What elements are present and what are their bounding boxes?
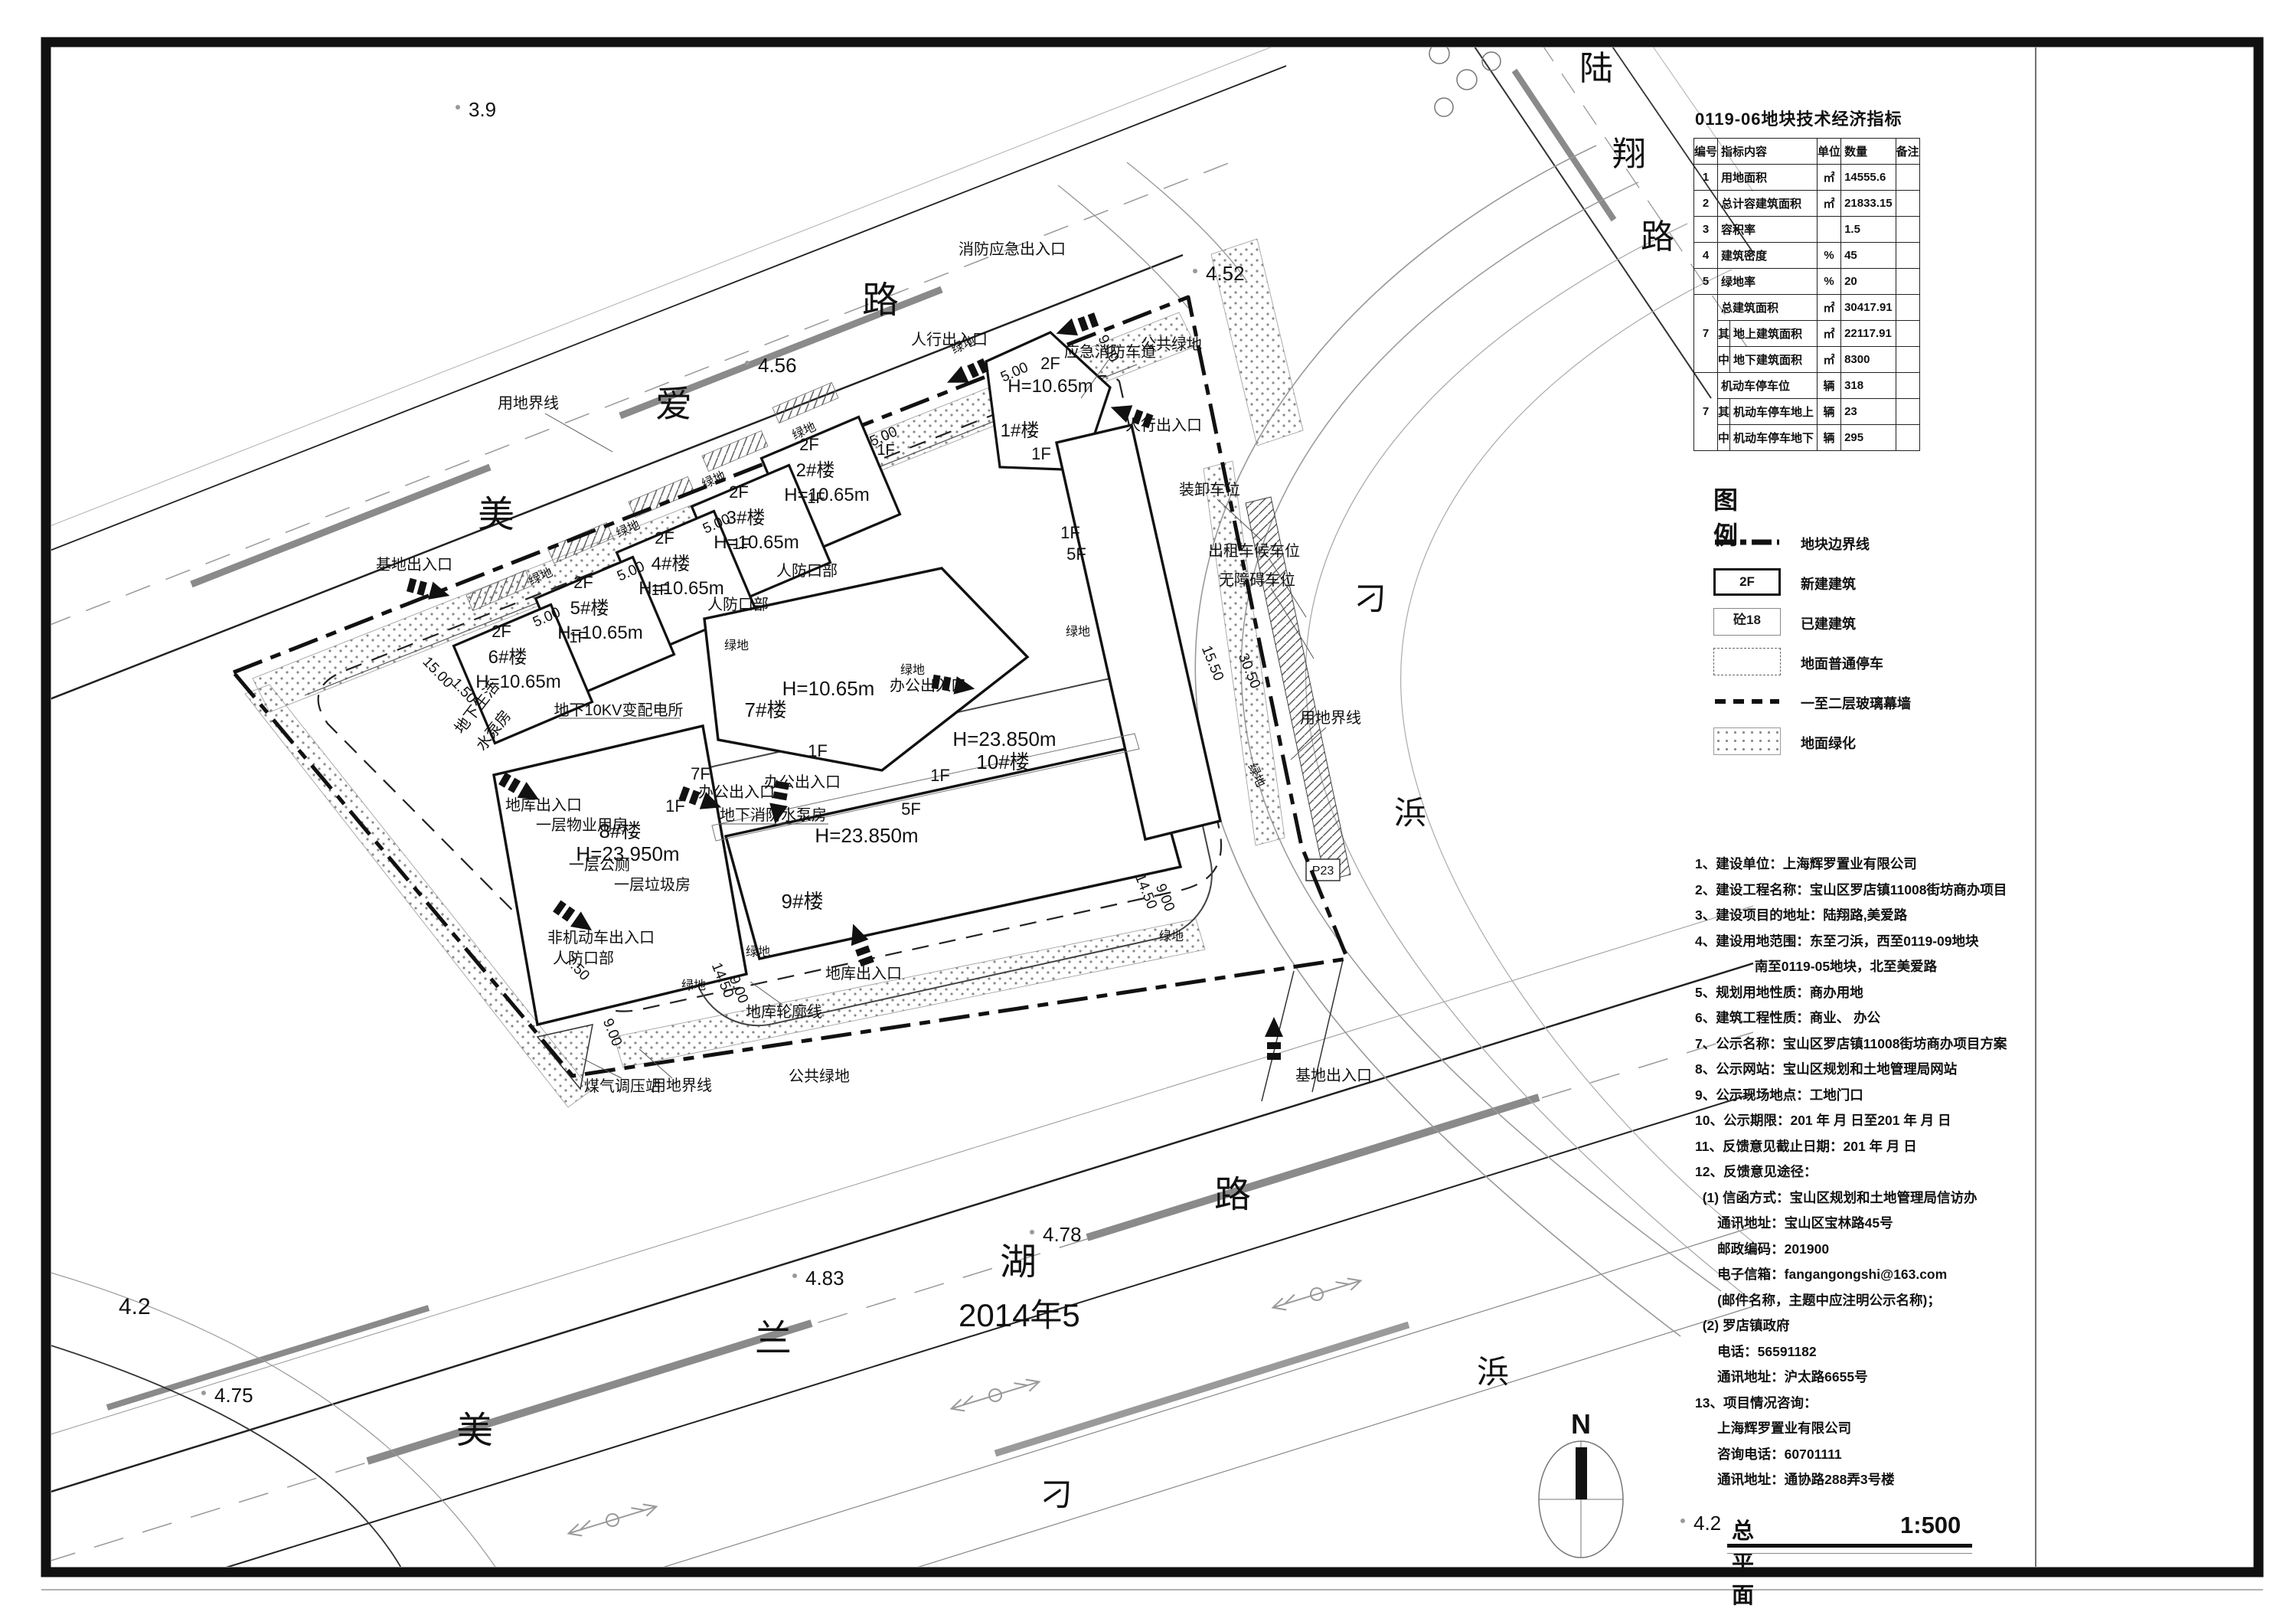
- svg-text:H=10.65m: H=10.65m: [784, 485, 869, 505]
- road-median-bar: [1514, 70, 1614, 220]
- svg-text:绿地: 绿地: [1159, 930, 1184, 943]
- table-row: 3容积率1.5: [1694, 217, 1920, 243]
- new-building-swatch: 2F: [1713, 568, 1781, 596]
- svg-text:基地出入口: 基地出入口: [1295, 1067, 1372, 1084]
- svg-text:4.2: 4.2: [1693, 1512, 1721, 1535]
- svg-text:美: 美: [456, 1411, 493, 1451]
- drawing-scale: 1:500: [1900, 1512, 1961, 1539]
- note-line: (2) 罗店镇政府: [1695, 1313, 2024, 1339]
- note-line: 邮政编码：201900: [1695, 1237, 2024, 1263]
- svg-text:人防口部: 人防口部: [707, 596, 769, 613]
- legend-item-ground-green: 地面绿化: [1713, 727, 2020, 758]
- note-line: 电话：56591182: [1695, 1339, 2024, 1365]
- svg-text:人防口部: 人防口部: [776, 562, 838, 580]
- road-median-bar: [107, 1308, 429, 1407]
- svg-text:湖: 湖: [1000, 1242, 1037, 1283]
- svg-text:4.2: 4.2: [119, 1294, 151, 1319]
- road-meilanhu-lu: [46, 906, 1753, 1615]
- svg-text:5#楼: 5#楼: [570, 598, 609, 619]
- svg-text:翔: 翔: [1612, 136, 1646, 173]
- table-row: 2总计容建筑面积㎡21833.15: [1694, 191, 1920, 217]
- north-label: N: [1571, 1408, 1591, 1440]
- drawing-sheet: N 美 爱 路 陆 翔 路 美 兰 湖 路 刁 浜 刁 浜 2F H=10.65…: [0, 0, 2296, 1615]
- svg-text:4#楼: 4#楼: [652, 554, 691, 574]
- svg-text:煤气调压站: 煤气调压站: [584, 1077, 661, 1095]
- svg-text:1F: 1F: [1031, 444, 1051, 463]
- svg-text:爱: 爱: [655, 384, 692, 425]
- svg-text:10#楼: 10#楼: [976, 750, 1029, 773]
- table-row: 其机动车停车地上辆23: [1694, 399, 1920, 425]
- svg-text:1F: 1F: [930, 766, 950, 785]
- svg-text:7#楼: 7#楼: [745, 698, 787, 721]
- note-line: (1) 信函方式：宝山区规划和土地管理局信访办: [1695, 1185, 2024, 1211]
- svg-text:地库出入口: 地库出入口: [825, 965, 902, 982]
- svg-text:1F: 1F: [651, 582, 668, 599]
- svg-text:陆: 陆: [1579, 50, 1613, 87]
- svg-text:办公出入口: 办公出入口: [698, 783, 775, 801]
- public-notice-notes: 1、建设单位：上海辉罗置业有限公司 2、建设工程名称：宝山区罗店镇11008街坊…: [1695, 852, 2024, 1493]
- road-median-bar: [367, 1323, 812, 1461]
- title-underline-thick: [1727, 1544, 1972, 1548]
- svg-text:办公出入口: 办公出入口: [890, 677, 966, 695]
- svg-text:绿地: 绿地: [746, 945, 770, 959]
- note-line: 5、规划用地性质：商办用地: [1695, 980, 2024, 1006]
- note-line: 12、反馈意见途径：: [1695, 1159, 2024, 1185]
- svg-text:人行出入口: 人行出入口: [1125, 417, 1202, 434]
- svg-text:装卸车位: 装卸车位: [1179, 481, 1240, 499]
- note-line: 11、反馈意见截止日期：201 年 月 日: [1695, 1134, 2024, 1160]
- drawing-title: 总平面布置图: [1732, 1513, 1756, 1615]
- svg-text:地库轮廓线: 地库轮廓线: [746, 1003, 822, 1021]
- note-line: 3、建设项目的地址：陆翔路,美爱路: [1695, 903, 2024, 929]
- svg-text:2F: 2F: [492, 622, 511, 641]
- svg-text:1#楼: 1#楼: [1001, 420, 1040, 441]
- svg-text:绿地: 绿地: [681, 979, 706, 992]
- glass-curtain-swatch: [1713, 688, 1781, 715]
- svg-text:公共绿地: 公共绿地: [789, 1067, 850, 1085]
- svg-text:3.9: 3.9: [469, 98, 496, 121]
- note-line: 通讯地址：宝山区宝林路45号: [1695, 1211, 2024, 1237]
- legend-item-new-building: 2F 新建建筑: [1713, 568, 2020, 599]
- table-row: 中地下建筑面积㎡8300: [1694, 347, 1920, 373]
- note-line: 上海辉罗置业有限公司: [1695, 1416, 2024, 1442]
- svg-text:地下消防水泵房: 地下消防水泵房: [720, 806, 827, 824]
- svg-text:2#楼: 2#楼: [796, 460, 835, 481]
- svg-text:1F: 1F: [732, 536, 750, 553]
- svg-text:刁: 刁: [1354, 580, 1386, 616]
- svg-text:基地出入口: 基地出入口: [376, 556, 452, 574]
- svg-text:1F: 1F: [665, 796, 685, 816]
- svg-text:2F: 2F: [573, 573, 593, 592]
- svg-text:1F: 1F: [808, 741, 828, 760]
- svg-text:路: 路: [1641, 218, 1674, 256]
- svg-text:刁: 刁: [1040, 1476, 1073, 1512]
- svg-text:H=10.65m: H=10.65m: [782, 677, 875, 700]
- note-line: 6、建筑工程性质：商业、 办公: [1695, 1005, 2024, 1031]
- table-row: 7总建筑面积㎡30417.91: [1694, 295, 1920, 321]
- note-line: 通讯地址：沪太路6655号: [1695, 1365, 2024, 1391]
- svg-text:4.75: 4.75: [214, 1384, 253, 1407]
- indicators-title: 0119-06地块技术经济指标: [1695, 106, 2024, 130]
- note-line: 咨询电话：60701111: [1695, 1442, 2024, 1468]
- svg-text:1F: 1F: [569, 629, 586, 646]
- svg-text:2F: 2F: [729, 482, 749, 502]
- legend-item-existing-building: 砼18 已建建筑: [1713, 608, 2020, 639]
- note-line: 4、建设用地范围：东至刁浜，西至0119-09地块: [1695, 929, 2024, 955]
- svg-text:无障碍车位: 无障碍车位: [1219, 571, 1295, 589]
- table-row: 7机动车停车位辆318: [1694, 373, 1920, 399]
- svg-text:2F: 2F: [1040, 354, 1060, 373]
- svg-text:一层物业用房: 一层物业用房: [536, 816, 628, 834]
- note-line: 13、项目情况咨询：: [1695, 1391, 2024, 1417]
- table-header-row: 编号 指标内容 单位 数量 备注: [1694, 139, 1920, 165]
- svg-text:5F: 5F: [1066, 544, 1086, 564]
- svg-text:1F: 1F: [1060, 523, 1080, 542]
- svg-text:9.00: 9.00: [599, 1016, 625, 1048]
- svg-text:绿地: 绿地: [724, 639, 749, 652]
- boundary-line-swatch: [1713, 528, 1781, 556]
- svg-text:P23: P23: [1312, 865, 1334, 878]
- svg-text:绿地: 绿地: [900, 663, 925, 677]
- survey-stamp: 2014年5: [959, 1297, 1080, 1333]
- note-line: 通讯地址：通协路288弄3号楼: [1695, 1467, 2024, 1493]
- svg-text:4.83: 4.83: [805, 1267, 844, 1290]
- ground-green-swatch: [1713, 727, 1781, 755]
- road-median-bar: [995, 1325, 1409, 1453]
- svg-text:用地界线: 用地界线: [1300, 709, 1361, 727]
- svg-text:1F: 1F: [807, 490, 825, 507]
- svg-text:7F: 7F: [691, 764, 710, 783]
- svg-text:H=10.65m: H=10.65m: [1008, 376, 1092, 397]
- svg-text:浜: 浜: [1477, 1354, 1509, 1390]
- svg-text:H=23.850m: H=23.850m: [952, 727, 1056, 750]
- existing-building-swatch: 砼18: [1713, 608, 1781, 636]
- note-line: 南至0119-05地块，北至美爱路: [1695, 954, 2024, 980]
- note-line: 7、公示名称：宝山区罗店镇11008街坊商办项目方案: [1695, 1031, 2024, 1058]
- note-line: 10、公示期限：201 年 月 日至201 年 月 日: [1695, 1108, 2024, 1134]
- svg-text:美: 美: [478, 495, 514, 535]
- fire-branch-road: [1058, 162, 1246, 308]
- legend-item-surface-parking: 地面普通停车: [1713, 648, 2020, 678]
- svg-text:路: 路: [862, 280, 899, 321]
- svg-text:H=10.65m: H=10.65m: [714, 532, 799, 553]
- note-line: 电子信箱：fangangongshi@163.com: [1695, 1262, 2024, 1288]
- svg-text:15.50: 15.50: [1198, 643, 1226, 683]
- svg-text:9#楼: 9#楼: [782, 890, 824, 913]
- note-line: 8、公示网站：宝山区规划和土地管理局网站: [1695, 1057, 2024, 1083]
- note-line: 2、建设工程名称：宝山区罗店镇11008街坊商办项目: [1695, 878, 2024, 904]
- row-no-7-cell: 7: [1694, 373, 1718, 451]
- road-fork-southwest: [46, 1271, 501, 1576]
- svg-text:兰: 兰: [755, 1319, 792, 1359]
- row-no-6-cell: 7: [1694, 295, 1718, 373]
- svg-text:5F: 5F: [901, 799, 921, 819]
- north-compass: N: [1539, 1408, 1623, 1558]
- svg-text:用地界线: 用地界线: [498, 394, 559, 412]
- svg-text:H=23.850m: H=23.850m: [815, 824, 918, 847]
- indicators-table: 编号 指标内容 单位 数量 备注 1用地面积㎡14555.6 2总计容建筑面积㎡…: [1693, 138, 1920, 451]
- note-line: 9、公示现场地点：工地门口: [1695, 1083, 2024, 1109]
- legend-item-glass-curtain: 一至二层玻璃幕墙: [1713, 688, 2020, 718]
- svg-text:路: 路: [1214, 1175, 1251, 1215]
- svg-text:浜: 浜: [1394, 795, 1426, 831]
- svg-text:消防应急出入口: 消防应急出入口: [959, 240, 1066, 258]
- svg-text:4.78: 4.78: [1043, 1223, 1082, 1246]
- road-median-bar: [1087, 1097, 1539, 1237]
- title-underline-thin: [1727, 1553, 1972, 1554]
- surface-parking-swatch: [1713, 648, 1781, 675]
- table-row: 1用地面积㎡14555.6: [1694, 165, 1920, 191]
- svg-text:地下10KV变配电所: 地下10KV变配电所: [554, 701, 684, 719]
- svg-text:绿地: 绿地: [1066, 625, 1090, 639]
- svg-text:4.52: 4.52: [1206, 262, 1245, 285]
- svg-text:2F: 2F: [655, 528, 674, 548]
- note-line: (邮件名称，主题中应注明公示名称)；: [1695, 1288, 2024, 1314]
- svg-text:出租车候车位: 出租车候车位: [1208, 542, 1300, 560]
- svg-text:绿地: 绿地: [700, 469, 728, 491]
- svg-text:地库出入口: 地库出入口: [505, 796, 582, 814]
- svg-text:非机动车出入口: 非机动车出入口: [547, 929, 655, 946]
- table-row: 中机动车停车地下辆295: [1694, 425, 1920, 451]
- svg-text:办公出入口: 办公出入口: [764, 773, 841, 791]
- svg-text:一层公厕: 一层公厕: [569, 857, 630, 874]
- table-row: 5绿地率%20: [1694, 269, 1920, 295]
- svg-text:一层垃圾房: 一层垃圾房: [614, 876, 691, 894]
- svg-text:4.56: 4.56: [758, 354, 797, 377]
- legend-item-boundary: 地块边界线: [1713, 528, 2020, 559]
- table-row: 其地上建筑面积㎡22117.91: [1694, 321, 1920, 347]
- svg-text:6#楼: 6#楼: [488, 647, 527, 668]
- table-row: 4建筑密度%45: [1694, 243, 1920, 269]
- note-line: 1、建设单位：上海辉罗置业有限公司: [1695, 852, 2024, 878]
